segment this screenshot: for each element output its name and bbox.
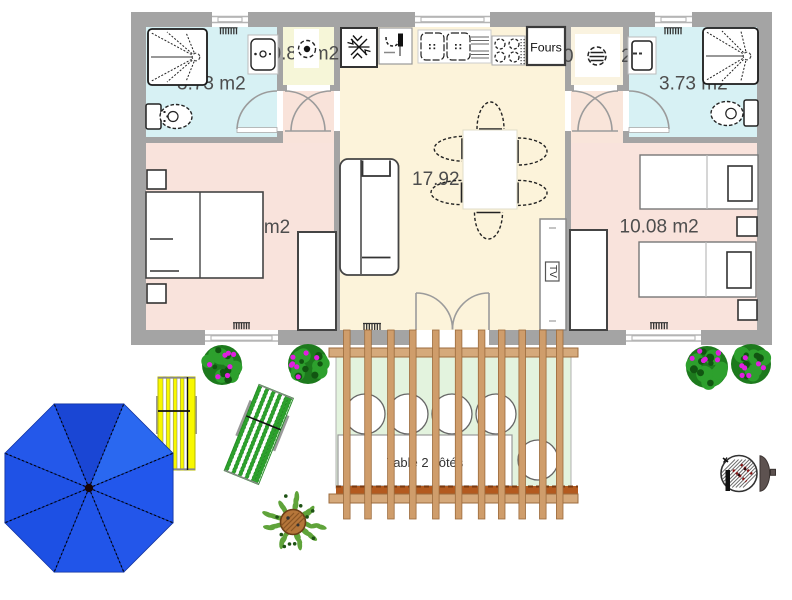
svg-text:10.08 m2: 10.08 m2 bbox=[620, 217, 699, 238]
svg-text:Table 2 côtés: Table 2 côtés bbox=[387, 455, 464, 470]
svg-text:Fours: Fours bbox=[530, 41, 562, 55]
svg-text:TV: TV bbox=[547, 265, 558, 278]
